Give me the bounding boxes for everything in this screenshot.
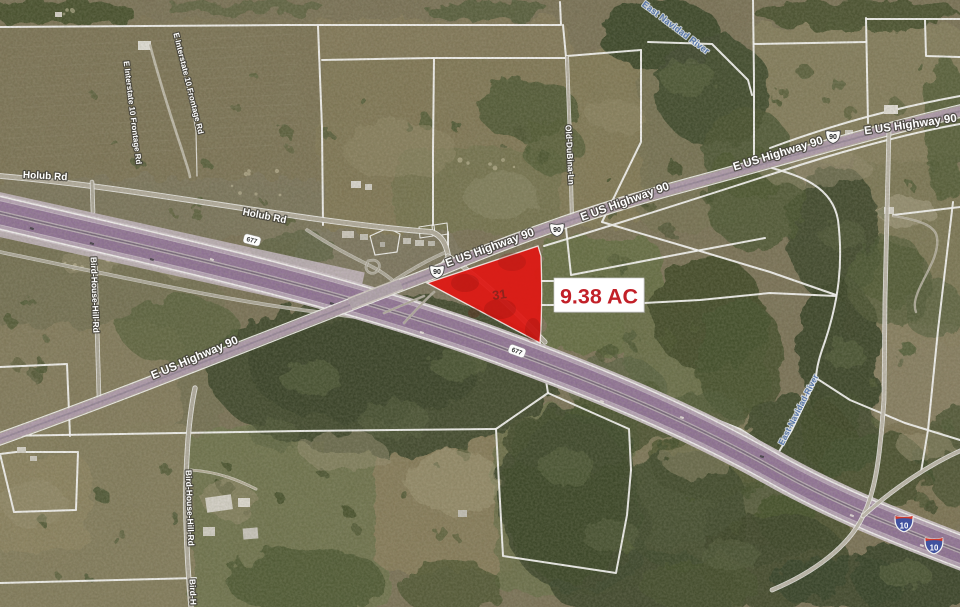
svg-text:31: 31 xyxy=(491,286,507,303)
svg-text:90: 90 xyxy=(433,269,441,276)
svg-text:90: 90 xyxy=(829,134,837,141)
svg-text:9.38 AC: 9.38 AC xyxy=(560,285,638,309)
svg-text:Holub Rd: Holub Rd xyxy=(23,170,68,183)
svg-text:90: 90 xyxy=(553,227,561,234)
svg-text:10: 10 xyxy=(900,521,909,530)
svg-text:Bird-H: Bird-H xyxy=(188,579,199,605)
svg-text:10: 10 xyxy=(930,543,939,552)
